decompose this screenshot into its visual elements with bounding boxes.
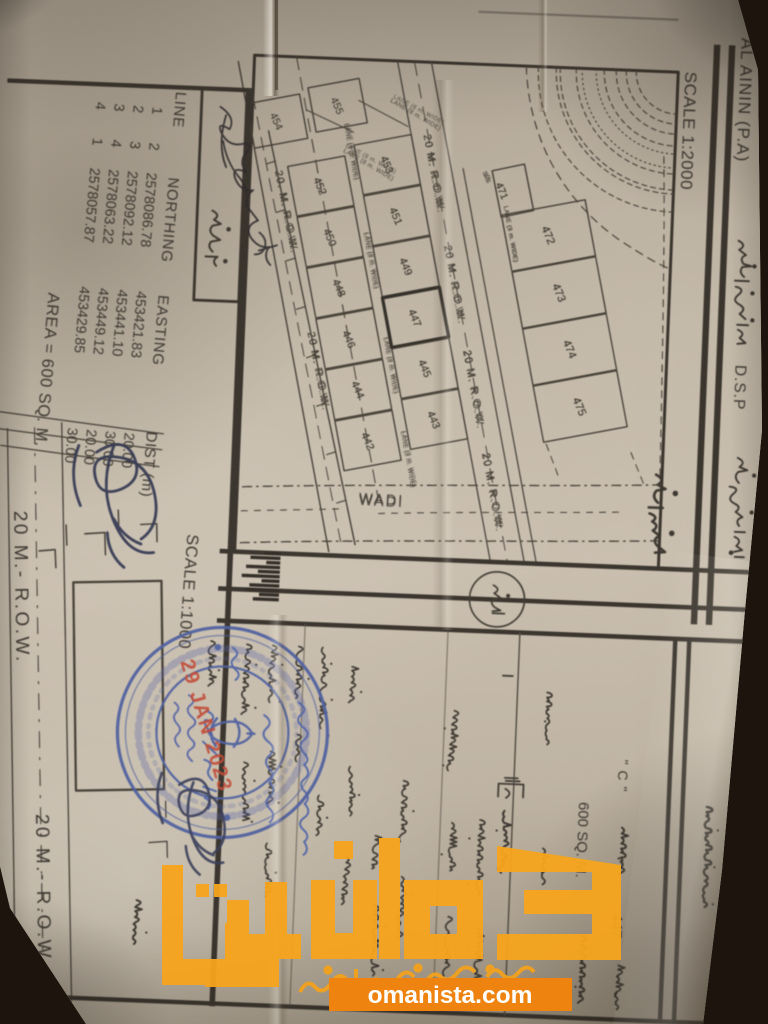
svg-text:AL AININ (P.A): AL AININ (P.A) — [733, 38, 757, 163]
svg-text:2: 2 — [129, 105, 146, 114]
svg-text:EASTING: EASTING — [149, 294, 172, 366]
svg-text:453429.85: 453429.85 — [70, 286, 92, 354]
svg-text:20 M.- R.O.W.: 20 M.- R.O.W. — [31, 814, 54, 967]
svg-text:4: 4 — [91, 101, 108, 110]
svg-text:20.00: 20.00 — [80, 429, 99, 466]
svg-text:3: 3 — [110, 103, 127, 112]
svg-text:3: 3 — [126, 140, 143, 149]
svg-text:20 M.- R.O.W.: 20 M.- R.O.W. — [9, 511, 32, 664]
svg-text:454: 454 — [267, 111, 285, 132]
svg-text:471: 471 — [493, 181, 511, 202]
svg-text:s/s: s/s — [482, 172, 494, 185]
svg-text:2578057.87: 2578057.87 — [80, 167, 102, 243]
svg-text:AREA = 600 SQ. M.: AREA = 600 SQ. M. — [31, 292, 62, 448]
svg-text:4: 4 — [107, 139, 124, 148]
svg-text:453421.83: 453421.83 — [127, 290, 149, 358]
svg-text:2: 2 — [145, 142, 162, 151]
svg-text:447: 447 — [405, 307, 423, 328]
svg-text:D.S.P: D.S.P — [730, 365, 749, 411]
svg-text:447: 447 — [607, 913, 625, 939]
svg-text:450: 450 — [320, 227, 338, 248]
svg-text:1: 1 — [88, 137, 105, 146]
svg-text:NORTHING: NORTHING — [157, 177, 181, 263]
svg-text:600 SQ. M.: 600 SQ. M. — [572, 802, 592, 878]
svg-text:1: 1 — [148, 106, 165, 115]
svg-text:443: 443 — [424, 409, 442, 430]
svg-text:448: 448 — [329, 277, 347, 298]
svg-text:20 M. R.O.W.: 20 M. R.O.W. — [421, 133, 447, 214]
svg-text:444: 444 — [348, 379, 366, 400]
svg-text:30.00: 30.00 — [61, 427, 80, 464]
svg-text:453441.10: 453441.10 — [108, 289, 130, 357]
svg-text:LINE: LINE — [169, 91, 189, 128]
svg-text:WADI: WADI — [359, 491, 405, 510]
svg-text:451: 451 — [386, 206, 404, 227]
svg-text:" C ": " C " — [614, 759, 631, 792]
svg-text:452: 452 — [311, 176, 329, 197]
svg-text:449: 449 — [396, 256, 414, 277]
svg-text:446: 446 — [339, 329, 357, 350]
svg-text:SCALE 1:2000: SCALE 1:2000 — [677, 71, 701, 190]
svg-text:473: 473 — [549, 282, 567, 304]
svg-text:472: 472 — [539, 224, 557, 246]
svg-text:453449.12: 453449.12 — [89, 287, 111, 355]
svg-text:445: 445 — [415, 358, 433, 379]
svg-text:455: 455 — [328, 96, 346, 117]
svg-text:20 M. R.O.W.: 20 M. R.O.W. — [305, 331, 332, 412]
svg-text:475: 475 — [570, 396, 588, 418]
